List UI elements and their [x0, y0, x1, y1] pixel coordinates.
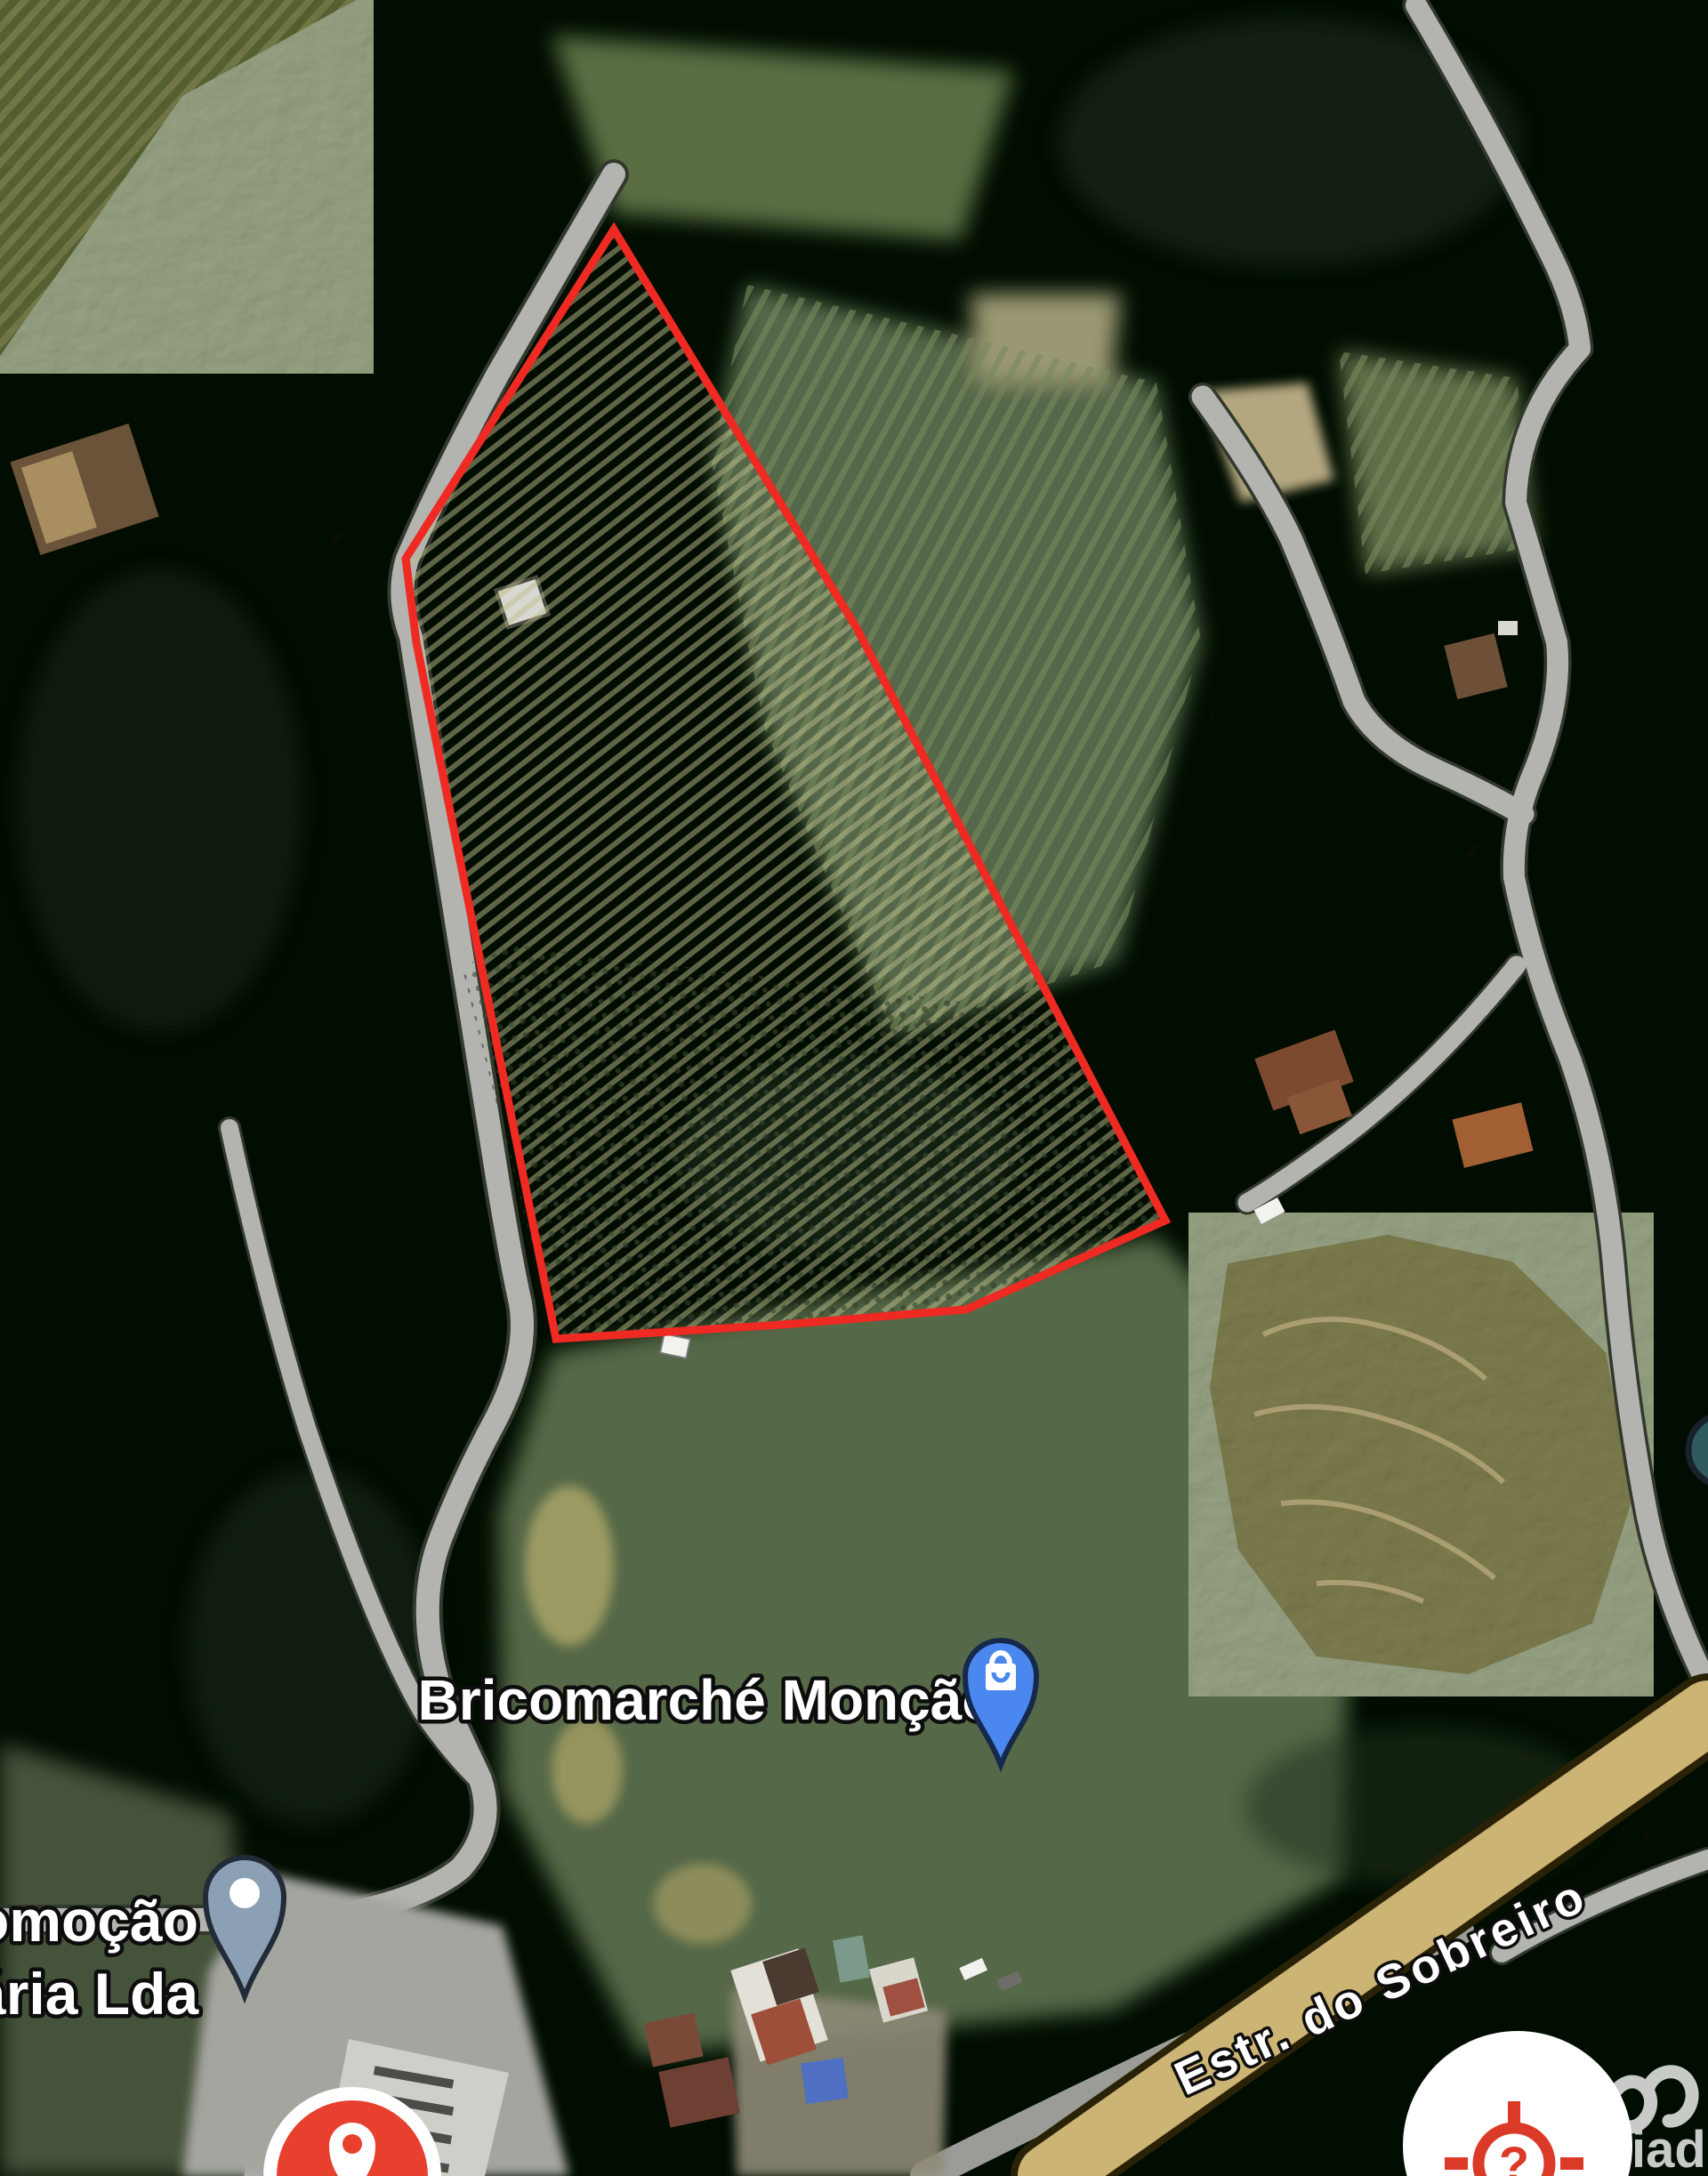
company-label-line1: omoção	[0, 1888, 198, 1954]
location-pin-button-icon	[329, 2123, 375, 2176]
poi-bricomarche-label[interactable]: Bricomarché Monção	[418, 1668, 997, 1732]
field-top-center	[552, 36, 1014, 240]
company-label-line2: ária Lda	[0, 1961, 199, 2027]
east-rows-overlay	[1339, 351, 1535, 574]
flower-patch	[552, 1717, 623, 1824]
help-glyph: ?	[1499, 2136, 1529, 2176]
watermark-text: iad	[1631, 2121, 1706, 2176]
map-canvas[interactable]: Bricomarché Monção omoção ária Lda Estr.…	[0, 0, 1708, 2176]
flower-patch	[654, 1864, 752, 1944]
flower-patch	[525, 1486, 614, 1646]
